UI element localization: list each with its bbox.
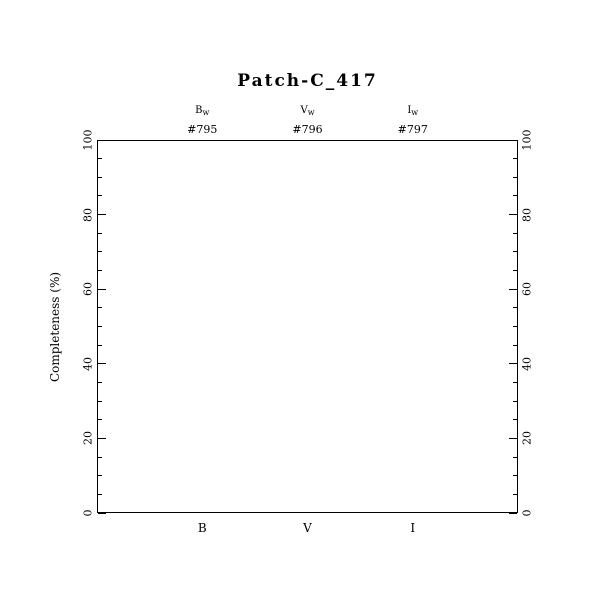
filter-name: Vw [292, 105, 322, 119]
y-major-tick-left [98, 513, 106, 514]
completeness-figure: Patch-C_417 Completeness (%) 00202040406… [0, 0, 611, 611]
y-major-tick-right [509, 214, 517, 215]
plate-id: #796 [292, 123, 322, 136]
plot-box [97, 140, 518, 513]
y-minor-tick-right [513, 177, 517, 178]
y-minor-tick-right [513, 307, 517, 308]
y-minor-tick-left [98, 158, 102, 159]
y-major-tick-left [98, 140, 106, 141]
y-minor-tick-left [98, 251, 102, 252]
x-category-label: B [198, 521, 207, 535]
y-tick-label-left: 80 [82, 208, 95, 222]
y-tick-label-right: 20 [521, 431, 534, 445]
filter-subscript: w [308, 108, 315, 117]
y-major-tick-right [509, 140, 517, 141]
y-minor-tick-right [513, 345, 517, 346]
y-minor-tick-left [98, 233, 102, 234]
y-minor-tick-left [98, 177, 102, 178]
y-major-tick-right [509, 363, 517, 364]
y-tick-label-left: 0 [82, 510, 95, 517]
y-tick-label-right: 40 [521, 357, 534, 371]
filter-header: Vw#796 [292, 105, 322, 136]
y-minor-tick-right [513, 195, 517, 196]
y-minor-tick-left [98, 307, 102, 308]
filter-header: Bw#795 [187, 105, 217, 136]
y-minor-tick-right [513, 457, 517, 458]
y-minor-tick-right [513, 494, 517, 495]
chart-title: Patch-C_417 [97, 71, 518, 91]
y-minor-tick-left [98, 382, 102, 383]
y-minor-tick-right [513, 270, 517, 271]
y-major-tick-right [509, 513, 517, 514]
y-minor-tick-right [513, 251, 517, 252]
x-category-label: V [303, 521, 312, 535]
filter-name: Bw [187, 105, 217, 119]
y-tick-label-right: 80 [521, 208, 534, 222]
y-tick-label-right: 60 [521, 282, 534, 296]
filter-name: Iw [398, 105, 428, 119]
y-minor-tick-right [513, 158, 517, 159]
x-category-label: I [410, 521, 415, 535]
y-minor-tick-right [513, 419, 517, 420]
y-minor-tick-left [98, 326, 102, 327]
y-minor-tick-right [513, 382, 517, 383]
y-tick-label-left: 100 [82, 130, 95, 151]
y-major-tick-left [98, 289, 106, 290]
y-axis-title: Completeness (%) [48, 272, 62, 382]
y-minor-tick-left [98, 494, 102, 495]
filter-subscript: w [203, 108, 210, 117]
y-major-tick-left [98, 214, 106, 215]
y-tick-label-right: 100 [521, 130, 534, 151]
y-tick-label-left: 20 [82, 431, 95, 445]
plate-id: #797 [398, 123, 428, 136]
filter-header: Iw#797 [398, 105, 428, 136]
y-tick-label-right: 0 [521, 510, 534, 517]
y-major-tick-right [509, 438, 517, 439]
y-minor-tick-left [98, 475, 102, 476]
y-minor-tick-left [98, 270, 102, 271]
y-minor-tick-right [513, 401, 517, 402]
y-major-tick-left [98, 363, 106, 364]
y-tick-label-left: 40 [82, 357, 95, 371]
y-minor-tick-left [98, 195, 102, 196]
y-major-tick-left [98, 438, 106, 439]
y-minor-tick-right [513, 233, 517, 234]
y-major-tick-right [509, 289, 517, 290]
filter-subscript: w [411, 108, 418, 117]
y-minor-tick-left [98, 401, 102, 402]
plate-id: #795 [187, 123, 217, 136]
y-minor-tick-right [513, 475, 517, 476]
y-minor-tick-left [98, 345, 102, 346]
y-minor-tick-left [98, 457, 102, 458]
y-minor-tick-left [98, 419, 102, 420]
y-minor-tick-right [513, 326, 517, 327]
y-tick-label-left: 60 [82, 282, 95, 296]
